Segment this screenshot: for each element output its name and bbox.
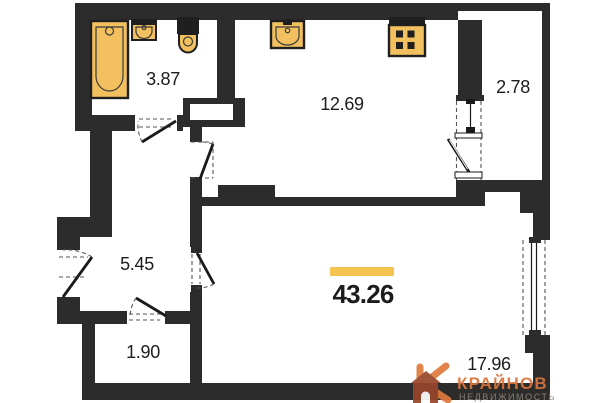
floorplan-image: 3.87 12.69 2.78 5.45 1.90 17.96 43.26 КР… (0, 0, 605, 403)
wall-segment (542, 3, 550, 183)
frame-block (466, 99, 475, 104)
door-leaf (200, 144, 213, 179)
wall-segment (75, 115, 135, 131)
wall-segment (57, 217, 112, 237)
total-area-highlight (330, 267, 394, 276)
balcony-door (448, 99, 482, 180)
walls (57, 3, 550, 400)
wall-segment (190, 203, 202, 247)
stove-burner (396, 42, 403, 49)
toilet-cistern (177, 17, 199, 34)
wall-segment (458, 3, 550, 11)
room-label-bathroom: 3.87 (146, 69, 180, 89)
room-label-storage: 1.90 (126, 342, 160, 362)
room-label-kitchen: 12.69 (320, 94, 364, 114)
wall-segment (190, 292, 202, 383)
toilet-icon (177, 17, 199, 53)
door-swing-arc (63, 250, 92, 257)
bathtub-icon (91, 21, 128, 98)
door-hinge-block (58, 244, 72, 250)
door-hinge-block (191, 247, 202, 253)
vent-shaft-icon (183, 98, 245, 127)
wall-segment (533, 213, 550, 240)
wall-segment (482, 180, 550, 192)
stove-burner (408, 31, 415, 38)
door-living (192, 253, 214, 288)
total-area-label: 43.26 (332, 279, 393, 309)
door-swing-arc (130, 298, 136, 316)
door-swing-arc (138, 121, 142, 142)
floorplan-canvas: 3.87 12.69 2.78 5.45 1.90 17.96 43.26 КР… (0, 0, 605, 403)
wall-segment (458, 20, 482, 95)
room-label-hallway: 5.45 (120, 254, 154, 274)
door-storage (129, 298, 166, 320)
window-icon (523, 240, 545, 335)
door-entry (59, 250, 92, 297)
logo-house-door (421, 392, 430, 403)
sink-icon (132, 19, 156, 40)
kitchen-sink-tap (283, 19, 292, 25)
wall-segment (177, 115, 183, 131)
room-label-balcony: 2.78 (496, 77, 530, 97)
door-hinge-block (191, 285, 202, 292)
door-rail (455, 172, 482, 178)
wall-segment (456, 180, 485, 206)
door-rail (455, 133, 482, 138)
vent-shaft-cavity (190, 104, 233, 120)
wall-segment (218, 185, 275, 206)
stove-burner (396, 31, 403, 38)
wall-segment (525, 335, 550, 353)
frame-block (466, 127, 475, 133)
sink-backsplash (132, 19, 156, 25)
wall-segment (75, 3, 92, 131)
door-kitchen (191, 142, 213, 179)
wall-segment (57, 311, 127, 324)
stove-body (389, 25, 425, 56)
brand-name: КРАЙНОВ (457, 374, 548, 393)
door-leaf (142, 121, 176, 142)
stove-burner (408, 42, 415, 49)
room-label-living: 17.96 (467, 354, 511, 374)
door-leaf-highlight (450, 140, 468, 169)
kitchen-sink-icon (271, 19, 304, 48)
window-sill (529, 237, 541, 243)
brand-subtitle: НЕДВИЖИМОСТЬ (459, 392, 556, 402)
door-bathroom (138, 119, 176, 142)
door-leaf (136, 298, 166, 316)
wall-segment (520, 192, 550, 213)
stove-icon (389, 17, 425, 56)
wall-segment (90, 131, 112, 217)
